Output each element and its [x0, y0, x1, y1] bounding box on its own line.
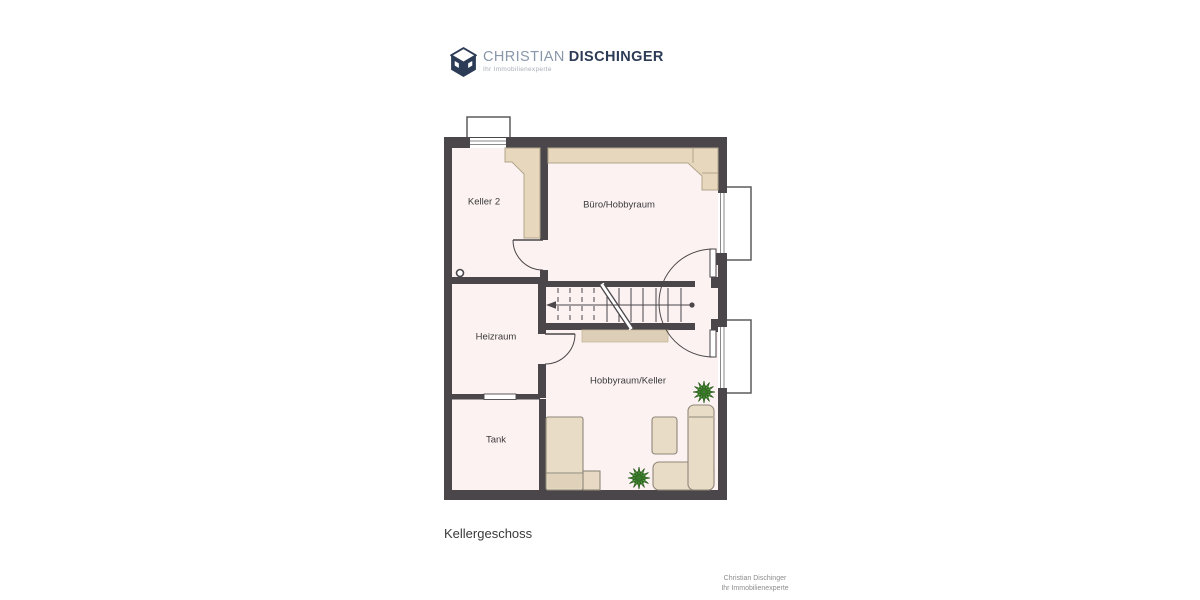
footer-line2: Ihr Immobilienexperte — [695, 584, 815, 594]
wall-point-symbol — [457, 270, 464, 277]
side-table — [652, 417, 677, 454]
brand-first-word: CHRISTIAN — [483, 49, 565, 65]
room-label-tank: Tank — [486, 435, 506, 446]
room-label-hobbyraum: Hobbyraum/Keller — [590, 376, 666, 387]
brand-second-word: DISCHINGER — [569, 49, 664, 65]
room-label-buero: Büro/Hobbyraum — [583, 200, 655, 211]
room-label-heizraum: Heizraum — [476, 332, 517, 343]
brand-logo: CHRISTIANDISCHINGER Ihr Immobilienexpert… — [450, 47, 664, 78]
room-label-keller2: Keller 2 — [468, 197, 500, 208]
floor-title: Kellergeschoss — [444, 526, 532, 541]
window-right-upper — [718, 193, 727, 253]
tank-hatch-window — [484, 394, 516, 400]
cube-logo-icon — [450, 47, 477, 78]
footer-credit: Christian Dischinger Ihr Immobilienexper… — [695, 574, 815, 594]
footer-line1: Christian Dischinger — [695, 574, 815, 584]
brand-tagline: Ihr Immobilienexperte — [483, 66, 664, 73]
window-right-lower — [718, 327, 727, 388]
page: CHRISTIANDISCHINGER Ihr Immobilienexpert… — [0, 0, 1200, 600]
window-top — [470, 138, 506, 148]
brand-text: CHRISTIANDISCHINGER Ihr Immobilienexpert… — [483, 47, 664, 73]
brand-name: CHRISTIANDISCHINGER — [483, 51, 664, 64]
floorplan-drawing — [440, 105, 760, 510]
understair-storage — [582, 330, 668, 342]
